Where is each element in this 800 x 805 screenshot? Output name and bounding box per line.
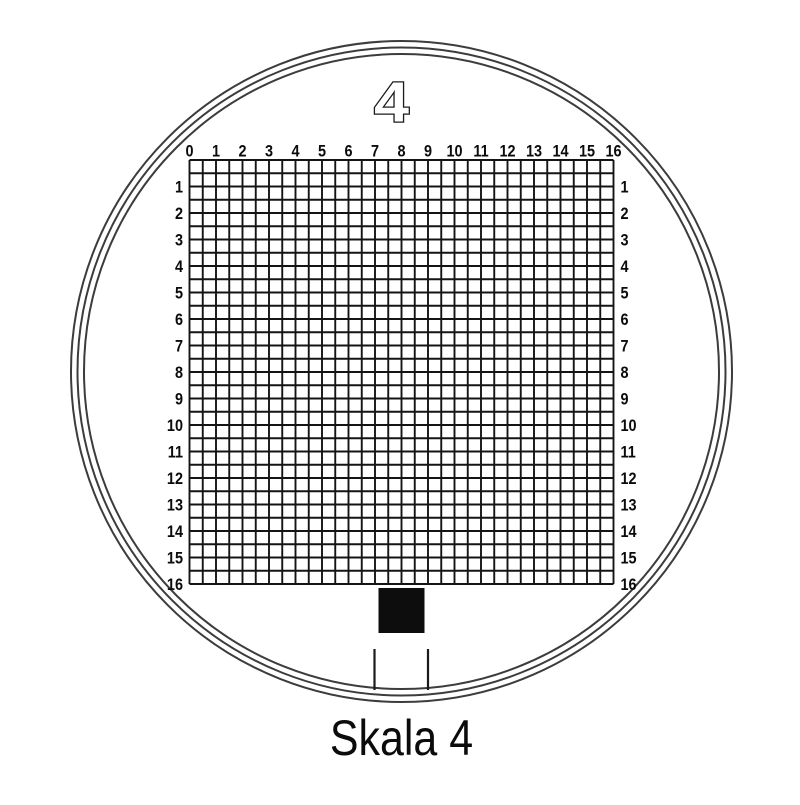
svg-text:1: 1 [621, 178, 629, 196]
svg-text:7: 7 [621, 337, 629, 355]
svg-text:14: 14 [621, 523, 637, 541]
svg-text:7: 7 [175, 337, 183, 355]
svg-text:12: 12 [499, 142, 515, 160]
svg-text:10: 10 [167, 417, 183, 435]
svg-text:14: 14 [167, 523, 183, 541]
svg-text:12: 12 [167, 470, 183, 488]
svg-text:6: 6 [621, 311, 629, 329]
svg-text:9: 9 [424, 142, 432, 160]
svg-text:11: 11 [473, 142, 488, 160]
svg-text:Skala 4: Skala 4 [330, 710, 473, 766]
svg-text:5: 5 [621, 284, 629, 302]
svg-text:8: 8 [621, 364, 629, 382]
svg-text:2: 2 [238, 142, 246, 160]
svg-text:2: 2 [621, 205, 629, 223]
svg-text:5: 5 [175, 284, 183, 302]
svg-text:9: 9 [621, 390, 629, 408]
svg-text:13: 13 [167, 496, 183, 514]
svg-text:6: 6 [344, 142, 352, 160]
svg-text:11: 11 [168, 443, 183, 461]
svg-text:10: 10 [621, 417, 637, 435]
svg-text:16: 16 [605, 142, 621, 160]
svg-text:3: 3 [175, 231, 183, 249]
svg-text:3: 3 [621, 231, 629, 249]
svg-text:8: 8 [175, 364, 183, 382]
svg-text:1: 1 [175, 178, 183, 196]
svg-text:13: 13 [526, 142, 542, 160]
svg-text:9: 9 [175, 390, 183, 408]
svg-text:8: 8 [397, 142, 405, 160]
svg-text:16: 16 [167, 576, 183, 594]
svg-text:15: 15 [579, 142, 595, 160]
svg-text:2: 2 [175, 205, 183, 223]
svg-text:4: 4 [374, 70, 409, 134]
svg-text:7: 7 [371, 142, 379, 160]
svg-text:10: 10 [446, 142, 462, 160]
svg-text:13: 13 [621, 496, 637, 514]
svg-text:15: 15 [621, 549, 637, 567]
svg-text:12: 12 [621, 470, 637, 488]
svg-text:0: 0 [185, 142, 193, 160]
svg-text:11: 11 [621, 443, 636, 461]
svg-text:4: 4 [621, 258, 629, 276]
svg-text:4: 4 [291, 142, 299, 160]
svg-text:15: 15 [167, 549, 183, 567]
svg-text:4: 4 [175, 258, 183, 276]
svg-text:1: 1 [212, 142, 220, 160]
svg-text:14: 14 [552, 142, 568, 160]
svg-text:3: 3 [265, 142, 273, 160]
svg-text:6: 6 [175, 311, 183, 329]
svg-text:16: 16 [621, 576, 637, 594]
svg-text:5: 5 [318, 142, 326, 160]
